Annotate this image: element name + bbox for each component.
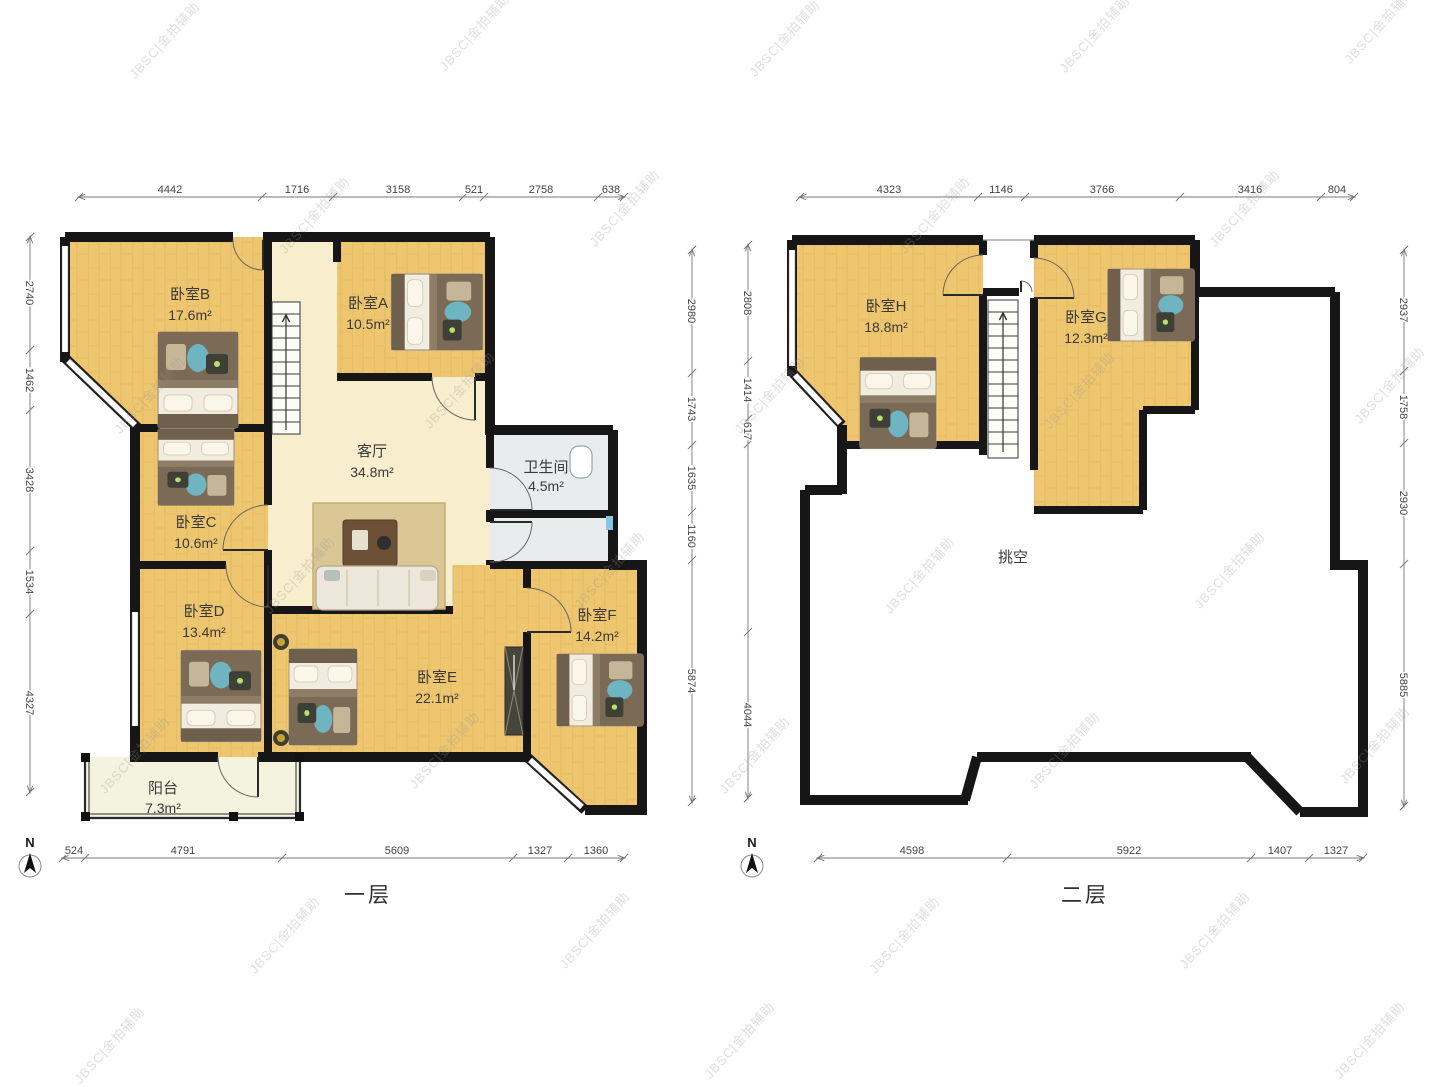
room-area: 12.3m² (1064, 330, 1108, 346)
dim-label: 4598 (900, 845, 924, 857)
room-area: 34.8m² (350, 464, 394, 480)
dim-label: 3428 (23, 468, 35, 492)
dim-label: 521 (465, 184, 483, 196)
dim-label: 4327 (23, 691, 35, 715)
room-label: 卧室C (176, 514, 217, 531)
dim-label: 1327 (528, 845, 552, 857)
dim-label: 524 (65, 845, 83, 857)
dim-label: 3766 (1090, 184, 1114, 196)
dim-label: 4442 (158, 184, 182, 196)
dim-label: 1462 (23, 368, 35, 392)
floor1-title: 一层 (344, 884, 392, 907)
dim-label: 1407 (1268, 845, 1292, 857)
staircase (272, 302, 300, 434)
dim-label: 4323 (877, 184, 901, 196)
compass-n-label: N (747, 835, 756, 850)
living-room-set (313, 503, 445, 610)
staircase-upper (988, 300, 1018, 458)
room-area: 17.6m² (168, 307, 212, 323)
dim-label: 804 (1328, 184, 1346, 196)
room-label: 客厅 (357, 443, 387, 460)
floor2-plan: 4323 1146 3766 3416 804 2808 1414 617 40… (720, 0, 1440, 1080)
room-area: 18.8m² (864, 319, 908, 335)
room-label: 阳台 (148, 780, 178, 797)
dim-label: 3416 (1238, 184, 1262, 196)
room-label: 卫生间 (523, 459, 568, 476)
dim-label: 5874 (685, 669, 697, 693)
dim-label: 1360 (584, 845, 608, 857)
dim-label: 3158 (386, 184, 410, 196)
dim-label: 1635 (685, 466, 697, 490)
dim-label: 2937 (1397, 298, 1409, 322)
room-label: 卧室D (184, 603, 225, 620)
room-area: 22.1m² (415, 690, 459, 706)
dim-label: 5885 (1397, 673, 1409, 697)
room-area: 7.3m² (145, 800, 181, 816)
room-area: 10.6m² (174, 535, 218, 551)
floor2-title: 二层 (1061, 884, 1109, 907)
floor1-plan: 4442 1716 3158 521 2758 638 2740 1462 34… (0, 0, 720, 1080)
dim-label: 4791 (171, 845, 195, 857)
dim-label: 2930 (1397, 491, 1409, 515)
room-area: 4.5m² (528, 478, 564, 494)
room-area: 10.5m² (346, 316, 390, 332)
dim-label: 638 (602, 184, 620, 196)
dim-label: 1146 (989, 184, 1013, 196)
dim-label: 617 (741, 422, 753, 440)
dim-label: 1716 (285, 184, 309, 196)
room-label: 卧室A (348, 295, 388, 312)
room-label: 卧室H (866, 298, 907, 315)
dim-label: 1534 (23, 570, 35, 594)
room-label: 卧室E (417, 669, 457, 686)
room-label: 挑空 (998, 549, 1028, 566)
dim-label: 2758 (529, 184, 553, 196)
room-label: 卧室B (170, 286, 210, 303)
dim-label: 4044 (741, 703, 753, 727)
compass-n-label: N (25, 835, 34, 850)
dim-label: 2808 (741, 291, 753, 315)
dim-label: 5922 (1117, 845, 1141, 857)
dim-label: 1414 (741, 378, 753, 402)
dim-label: 1160 (685, 524, 697, 548)
dim-label: 2740 (23, 281, 35, 305)
room-area: 14.2m² (575, 628, 619, 644)
dim-label: 1743 (685, 397, 697, 421)
room-balcony (85, 757, 300, 818)
dim-label: 1327 (1324, 845, 1348, 857)
room-area: 13.4m² (182, 624, 226, 640)
room-label: 卧室F (577, 607, 616, 624)
wardrobe (505, 647, 523, 735)
dim-label: 5609 (385, 845, 409, 857)
dim-label: 1758 (1397, 395, 1409, 419)
room-label: 卧室G (1065, 309, 1107, 326)
dim-label: 2980 (685, 299, 697, 323)
